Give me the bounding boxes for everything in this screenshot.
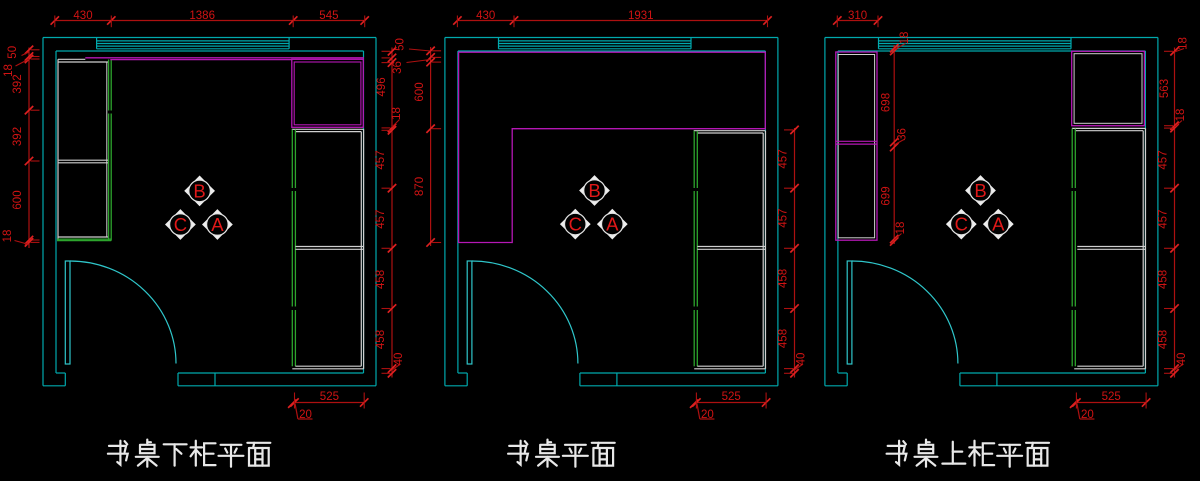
svg-text:B: B — [974, 180, 986, 201]
svg-text:458: 458 — [1158, 330, 1170, 349]
svg-text:458: 458 — [375, 270, 387, 289]
svg-text:457: 457 — [778, 209, 790, 228]
svg-text:C: C — [174, 214, 187, 235]
svg-text:C: C — [955, 214, 968, 235]
svg-text:457: 457 — [375, 210, 387, 229]
svg-text:563: 563 — [1159, 79, 1171, 98]
svg-text:699: 699 — [881, 186, 893, 205]
svg-text:698: 698 — [881, 93, 893, 112]
svg-text:40: 40 — [1176, 353, 1188, 366]
svg-text:458: 458 — [1158, 270, 1170, 289]
svg-text:457: 457 — [1158, 210, 1170, 229]
svg-text:A: A — [992, 214, 1005, 235]
svg-text:430: 430 — [476, 10, 495, 22]
svg-text:525: 525 — [320, 391, 339, 403]
svg-text:40: 40 — [796, 353, 808, 366]
svg-text:1931: 1931 — [628, 10, 654, 22]
svg-text:310: 310 — [848, 10, 867, 22]
svg-text:B: B — [193, 181, 205, 202]
svg-text:458: 458 — [375, 330, 387, 349]
svg-text:392: 392 — [12, 127, 24, 146]
svg-text:40: 40 — [393, 353, 405, 366]
svg-text:600: 600 — [414, 82, 426, 101]
svg-text:457: 457 — [1158, 150, 1170, 169]
svg-text:50: 50 — [395, 38, 407, 51]
svg-text:18: 18 — [2, 230, 14, 243]
svg-text:457: 457 — [375, 150, 387, 169]
svg-text:C: C — [569, 214, 582, 235]
svg-text:458: 458 — [778, 329, 790, 348]
svg-text:1386: 1386 — [189, 10, 215, 22]
svg-text:20: 20 — [299, 409, 312, 421]
svg-text:600: 600 — [12, 190, 24, 209]
svg-text:525: 525 — [722, 391, 741, 403]
svg-text:457: 457 — [778, 149, 790, 168]
svg-text:18: 18 — [899, 32, 911, 45]
svg-text:A: A — [211, 214, 224, 235]
svg-text:20: 20 — [701, 409, 714, 421]
svg-text:18: 18 — [895, 222, 907, 235]
svg-text:458: 458 — [778, 269, 790, 288]
svg-text:36: 36 — [897, 128, 909, 141]
svg-text:18: 18 — [1178, 37, 1190, 50]
svg-text:18: 18 — [1175, 109, 1187, 122]
svg-text:18: 18 — [391, 107, 403, 120]
svg-text:20: 20 — [1081, 409, 1094, 421]
svg-text:870: 870 — [414, 177, 426, 196]
svg-text:A: A — [606, 214, 619, 235]
svg-text:18: 18 — [3, 64, 15, 77]
svg-text:36: 36 — [392, 61, 404, 74]
svg-text:B: B — [588, 180, 600, 201]
svg-text:496: 496 — [376, 77, 388, 96]
svg-text:525: 525 — [1102, 391, 1121, 403]
svg-text:545: 545 — [319, 10, 338, 22]
svg-text:430: 430 — [73, 10, 92, 22]
svg-text:50: 50 — [7, 46, 19, 59]
